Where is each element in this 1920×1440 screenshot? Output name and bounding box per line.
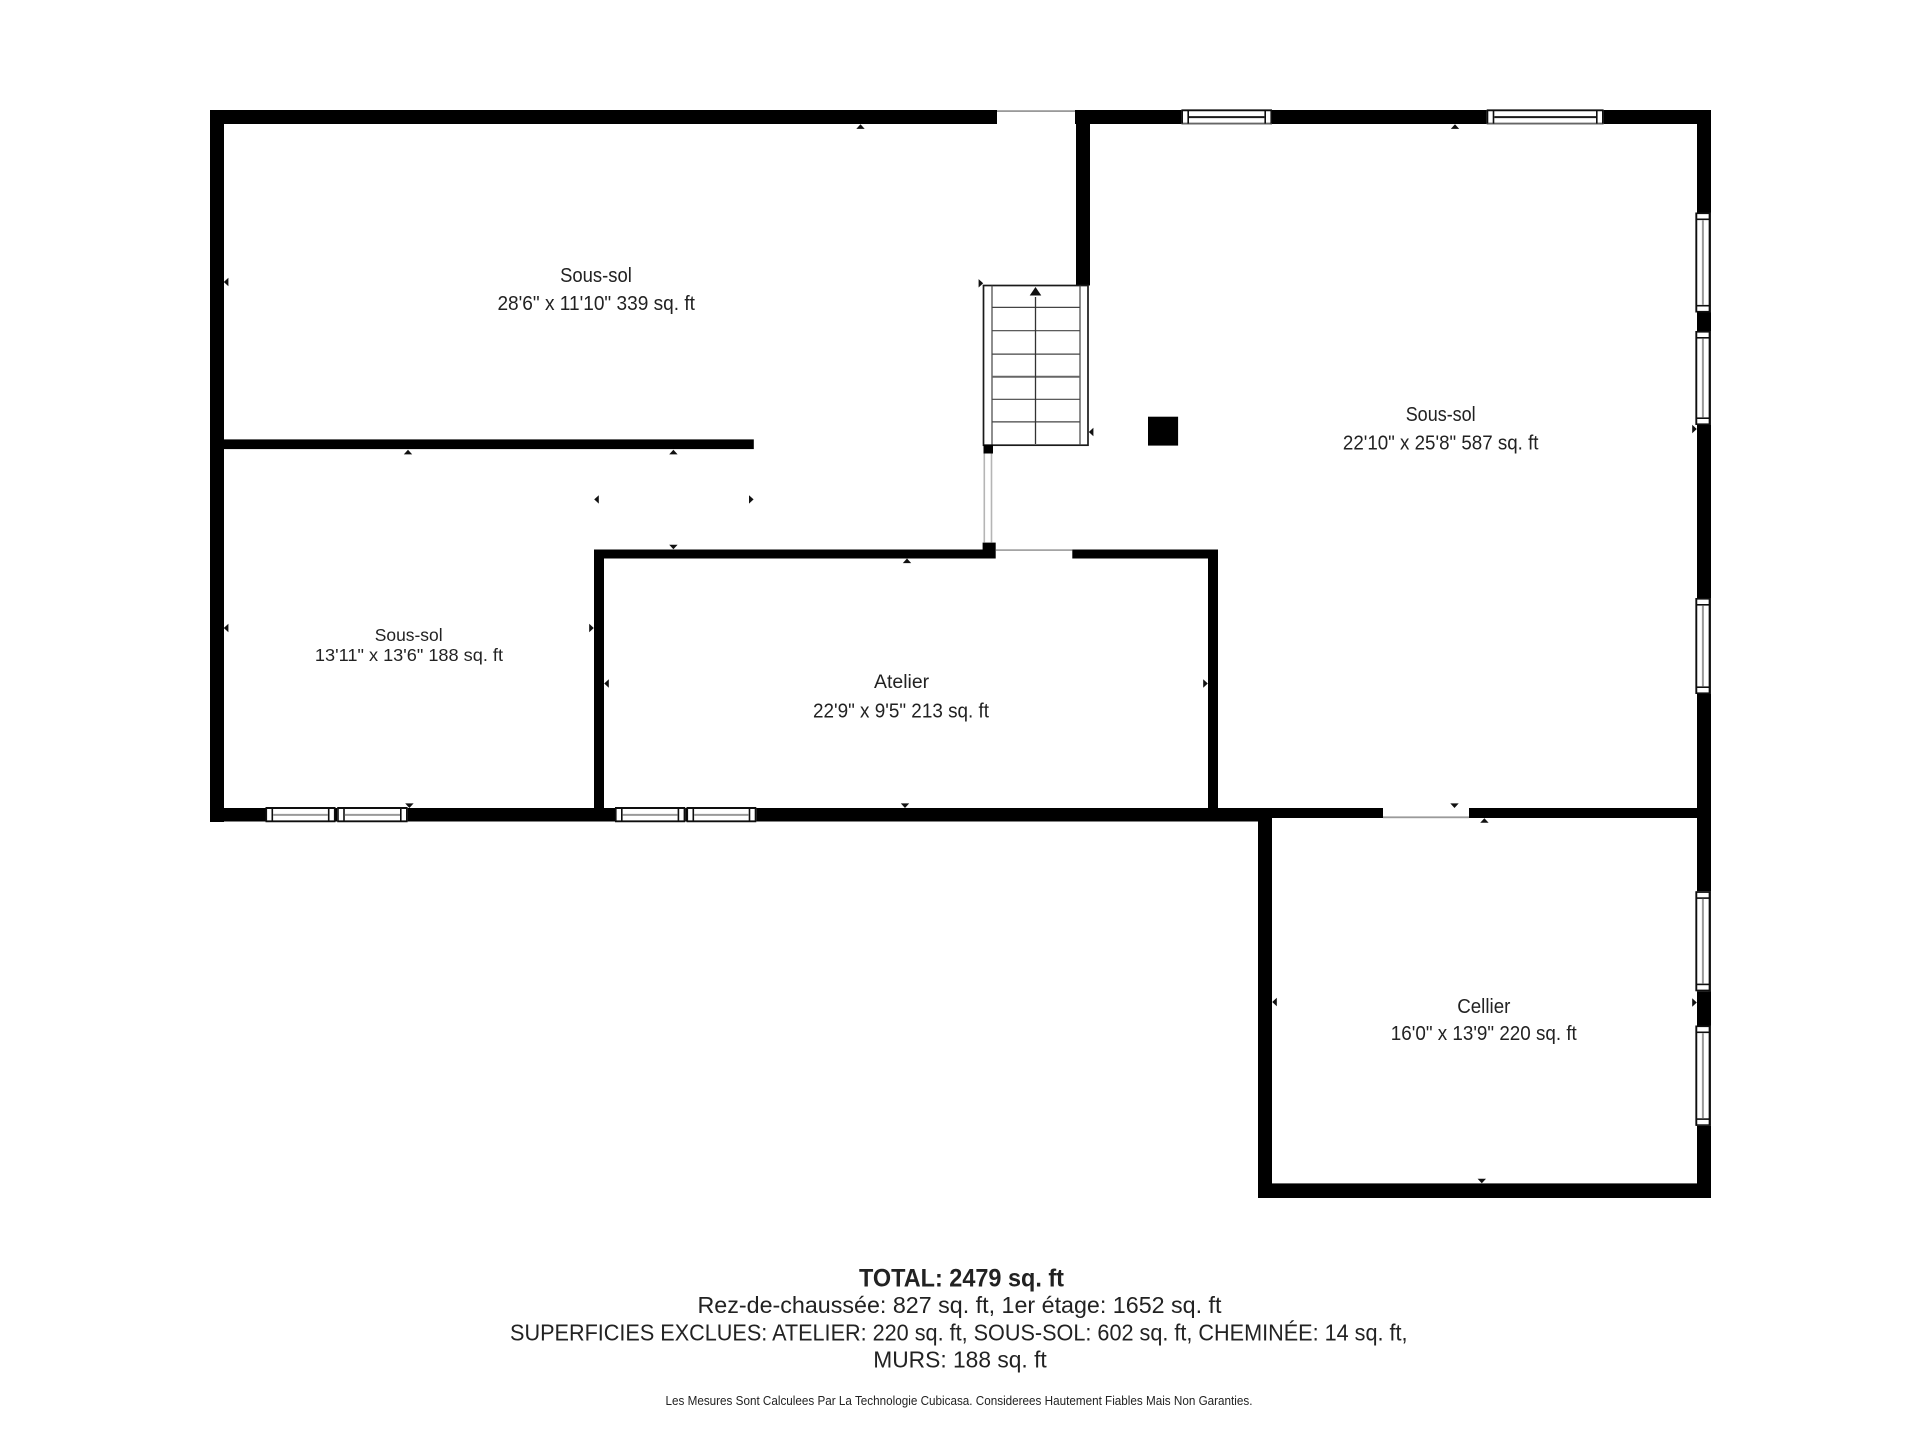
svg-text:Atelier: Atelier	[874, 671, 930, 693]
svg-text:MURS: 188 sq. ft: MURS: 188 sq. ft	[873, 1346, 1047, 1372]
svg-text:Les Mesures Sont Calculees Par: Les Mesures Sont Calculees Par La Techno…	[666, 1393, 1253, 1408]
svg-text:16'0" x 13'9" 220 sq. ft: 16'0" x 13'9" 220 sq. ft	[1391, 1023, 1577, 1045]
svg-text:13'11" x 13'6" 188 sq. ft: 13'11" x 13'6" 188 sq. ft	[315, 645, 503, 665]
svg-text:28'6" x 11'10" 339 sq. ft: 28'6" x 11'10" 339 sq. ft	[497, 293, 695, 315]
svg-text:Cellier: Cellier	[1457, 996, 1510, 1018]
svg-text:Sous-sol: Sous-sol	[1406, 404, 1476, 426]
svg-text:SUPERFICIES EXCLUES: ATELIER:: SUPERFICIES EXCLUES: ATELIER: 220 sq. ft…	[510, 1319, 1408, 1345]
svg-text:Sous-sol: Sous-sol	[560, 265, 632, 287]
svg-text:22'9" x 9'5" 213 sq. ft: 22'9" x 9'5" 213 sq. ft	[813, 700, 989, 723]
svg-text:TOTAL: 2479 sq. ft: TOTAL: 2479 sq. ft	[859, 1264, 1065, 1292]
svg-text:22'10" x 25'8" 587 sq. ft: 22'10" x 25'8" 587 sq. ft	[1343, 432, 1539, 454]
svg-text:Rez-de-chaussée: 827 sq. ft, 1: Rez-de-chaussée: 827 sq. ft, 1er étage: …	[698, 1292, 1222, 1318]
svg-text:Sous-sol: Sous-sol	[375, 625, 443, 645]
